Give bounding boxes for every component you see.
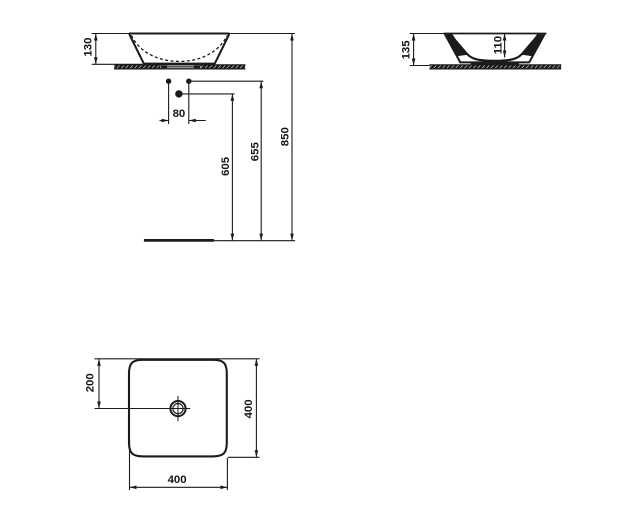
svg-text:110: 110 bbox=[493, 36, 505, 54]
svg-text:200: 200 bbox=[84, 373, 96, 392]
svg-text:605: 605 bbox=[220, 156, 232, 176]
svg-text:400: 400 bbox=[168, 474, 187, 486]
svg-text:655: 655 bbox=[249, 142, 261, 162]
svg-text:135: 135 bbox=[400, 40, 412, 60]
svg-text:130: 130 bbox=[83, 38, 95, 57]
svg-text:400: 400 bbox=[243, 399, 255, 418]
svg-text:80: 80 bbox=[173, 108, 186, 120]
svg-text:850: 850 bbox=[280, 127, 292, 146]
